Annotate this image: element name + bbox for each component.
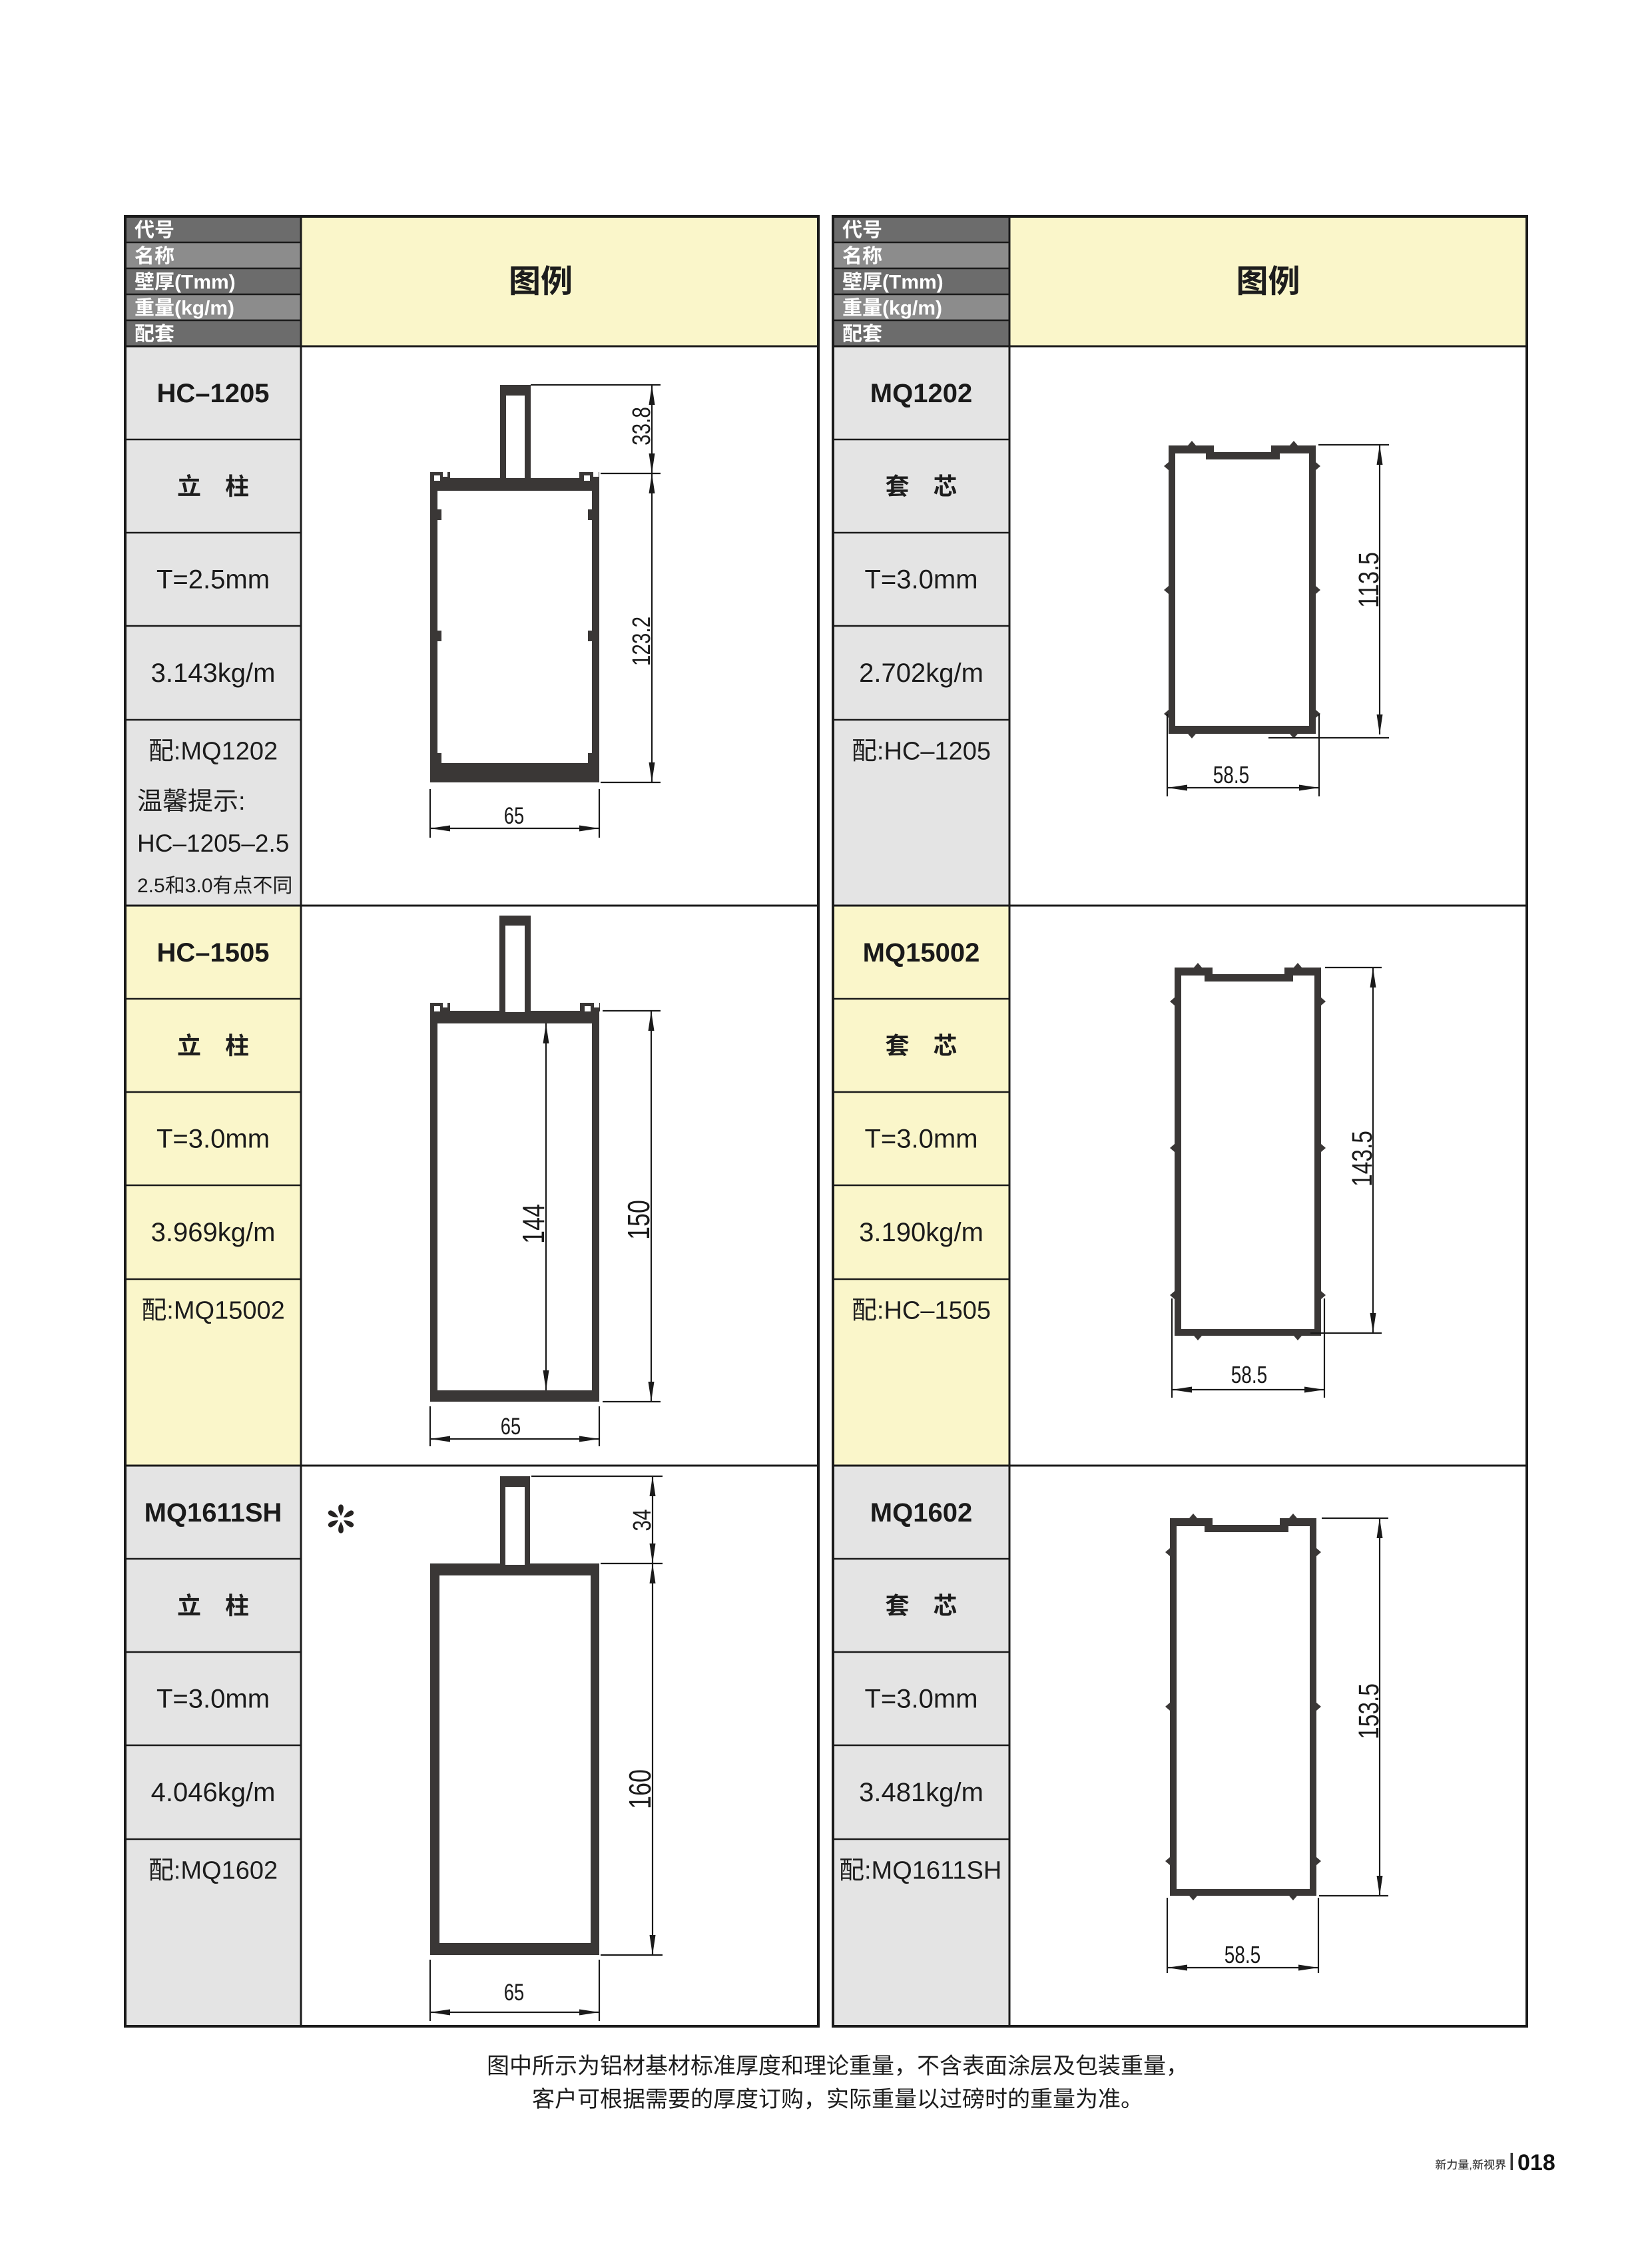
svg-text:2.702kg/m: 2.702kg/m	[859, 659, 983, 688]
svg-text:HC–1505: HC–1505	[156, 938, 269, 968]
svg-text:T=3.0mm: T=3.0mm	[864, 1125, 977, 1154]
svg-text:T=3.0mm: T=3.0mm	[864, 565, 977, 595]
svg-text:3.969kg/m: 3.969kg/m	[151, 1218, 276, 1247]
svg-text:65: 65	[504, 803, 524, 829]
svg-text:4.046kg/m: 4.046kg/m	[151, 1778, 276, 1807]
svg-text:3.0: 3.0	[185, 875, 213, 897]
svg-text:58.5: 58.5	[1231, 1361, 1268, 1388]
svg-text:33.8: 33.8	[628, 407, 656, 445]
svg-text:T=3.0mm: T=3.0mm	[156, 1685, 270, 1714]
svg-text::MQ1202: :MQ1202	[174, 738, 278, 766]
svg-text:113.5: 113.5	[1353, 552, 1385, 608]
svg-text:150: 150	[621, 1200, 656, 1240]
svg-text:(kg/m): (kg/m)	[882, 298, 942, 320]
svg-text:MQ15002: MQ15002	[863, 938, 980, 968]
svg-text:153.5: 153.5	[1353, 1683, 1385, 1739]
svg-text::MQ1611SH: :MQ1611SH	[864, 1857, 1001, 1885]
svg-text:HC–1205–2.5: HC–1205–2.5	[137, 830, 289, 857]
svg-text:T=3.0mm: T=3.0mm	[864, 1685, 977, 1714]
svg-text:(Tmm): (Tmm)	[882, 272, 944, 294]
svg-text:144: 144	[516, 1204, 551, 1244]
svg-text:143.5: 143.5	[1346, 1131, 1378, 1187]
svg-text::MQ1602: :MQ1602	[174, 1857, 278, 1885]
svg-text:(Tmm): (Tmm)	[174, 272, 236, 294]
svg-text:,: ,	[1469, 2159, 1472, 2171]
svg-text:3.190kg/m: 3.190kg/m	[859, 1218, 983, 1247]
svg-text:58.5: 58.5	[1225, 1941, 1261, 1968]
svg-text::HC–1205: :HC–1205	[877, 738, 991, 766]
svg-text:3.481kg/m: 3.481kg/m	[859, 1778, 983, 1807]
svg-text:(kg/m): (kg/m)	[174, 298, 234, 320]
svg-text:65: 65	[501, 1414, 521, 1440]
svg-text:HC–1205: HC–1205	[156, 379, 269, 408]
svg-text:34: 34	[629, 1510, 657, 1532]
svg-text:MQ1602: MQ1602	[870, 1498, 972, 1528]
svg-text:2.5: 2.5	[137, 875, 165, 897]
svg-text:MQ1611SH: MQ1611SH	[144, 1498, 282, 1528]
svg-text:MQ1202: MQ1202	[870, 379, 972, 408]
svg-text:123.2: 123.2	[628, 617, 656, 666]
svg-text:T=3.0mm: T=3.0mm	[156, 1125, 270, 1154]
svg-text:T=2.5mm: T=2.5mm	[156, 565, 270, 595]
svg-text:65: 65	[504, 1980, 524, 2006]
svg-text:3.143kg/m: 3.143kg/m	[151, 659, 276, 688]
svg-text::HC–1505: :HC–1505	[877, 1297, 991, 1325]
svg-text:58.5: 58.5	[1213, 761, 1250, 788]
svg-text::: :	[238, 788, 246, 816]
svg-text:018: 018	[1517, 2150, 1555, 2175]
svg-text::MQ15002: :MQ15002	[166, 1297, 284, 1325]
svg-text:160: 160	[623, 1769, 657, 1809]
